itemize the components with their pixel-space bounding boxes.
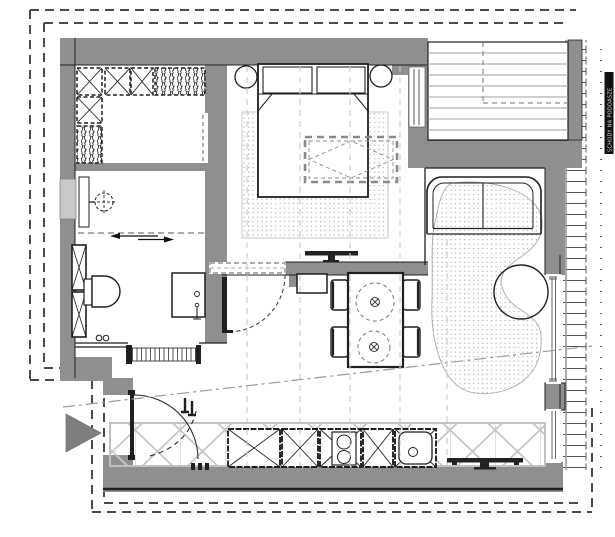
- living-window-2: [546, 409, 561, 463]
- window-sill-ledge: [79, 177, 89, 227]
- toilet: [84, 276, 120, 307]
- door-jamb: [222, 277, 227, 332]
- kitchen-stub-cabinet: [297, 274, 327, 293]
- closet-hanging-rail: [155, 68, 205, 95]
- double-bed: [258, 64, 368, 197]
- door-leaf: [130, 393, 134, 458]
- stairwell-window: [409, 67, 425, 127]
- nightstand-left: [235, 66, 257, 88]
- washbasin: [172, 273, 205, 319]
- bathroom-window: [60, 179, 76, 219]
- dining-table: [348, 273, 403, 367]
- bathroom-door-threshold: [126, 345, 201, 364]
- nightstand-right: [370, 65, 392, 87]
- kitchen-run: [228, 429, 436, 467]
- closet-hanging-rail: [77, 126, 102, 163]
- shoe-rack: [191, 463, 209, 470]
- floor-plan-drawing: SCHODY NA PODDASZE: [0, 0, 615, 537]
- pillow: [263, 67, 312, 93]
- pillow: [317, 67, 365, 93]
- kitchen-sink: [399, 432, 432, 464]
- staircase: [428, 42, 568, 140]
- cooktop: [332, 432, 356, 465]
- door-jamb-foot: [222, 330, 233, 333]
- stair-label-strip: SCHODY NA PODDASZE: [605, 72, 614, 154]
- floor-plan-canvas: SCHODY NA PODDASZE: [0, 0, 615, 537]
- stair-label-text: SCHODY NA PODDASZE: [608, 88, 614, 152]
